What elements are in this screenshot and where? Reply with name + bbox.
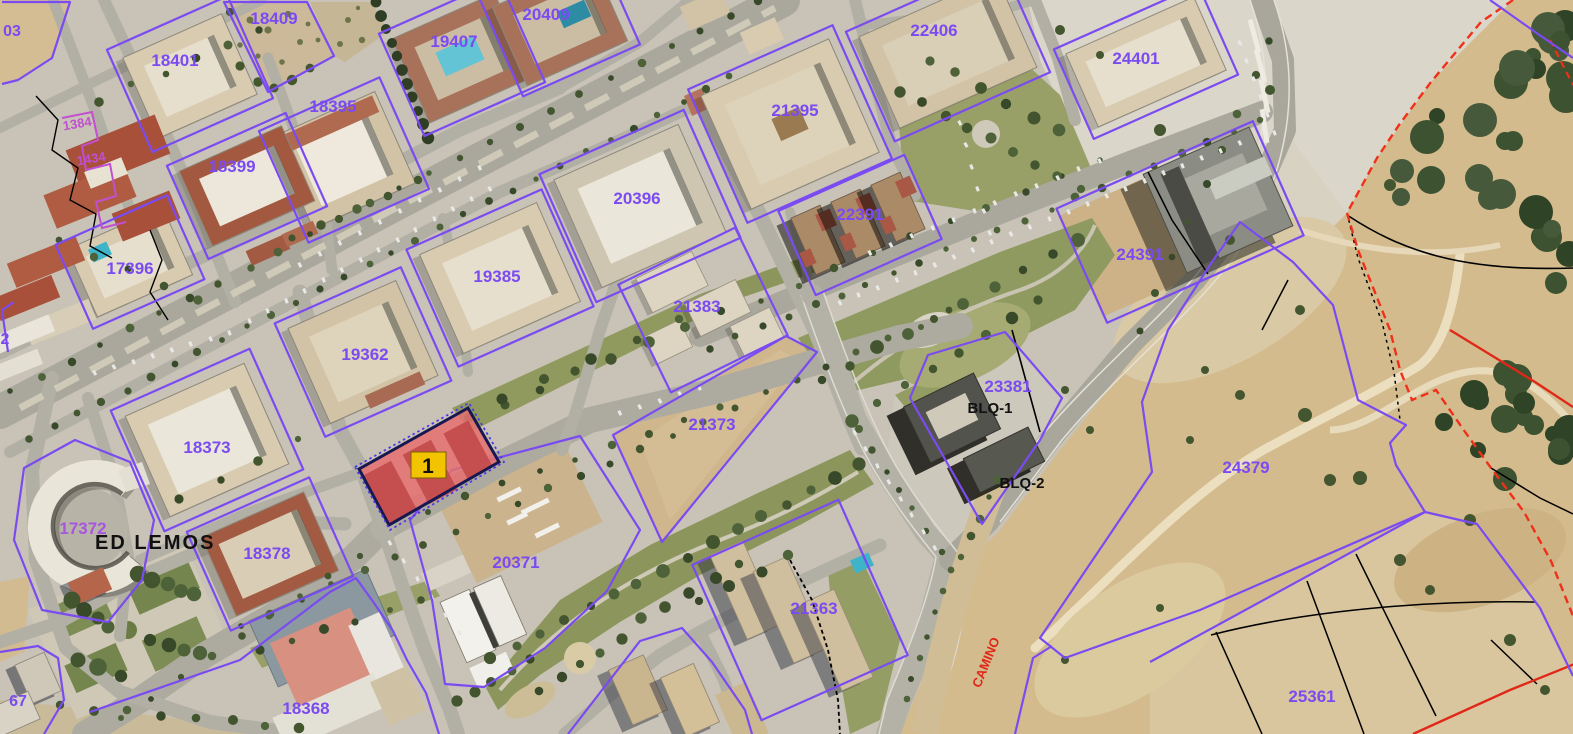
svg-text:22406: 22406 [910, 21, 957, 40]
svg-text:18368: 18368 [282, 699, 329, 718]
svg-text:ED LEMOS: ED LEMOS [95, 532, 215, 554]
svg-text:23381: 23381 [984, 377, 1031, 396]
svg-text:1: 1 [422, 455, 434, 478]
svg-text:18409: 18409 [250, 9, 297, 28]
svg-text:67: 67 [9, 693, 27, 710]
svg-text:22391: 22391 [836, 205, 883, 224]
svg-text:19407: 19407 [430, 32, 477, 51]
svg-text:20409: 20409 [522, 5, 569, 24]
svg-text:21383: 21383 [673, 297, 720, 316]
svg-text:20371: 20371 [492, 553, 539, 572]
svg-text:20396: 20396 [613, 189, 660, 208]
svg-text:24401: 24401 [1112, 49, 1159, 68]
svg-text:BLQ-1: BLQ-1 [968, 400, 1013, 417]
svg-text:19385: 19385 [473, 267, 520, 286]
svg-text:24391: 24391 [1116, 245, 1163, 264]
svg-text:21363: 21363 [790, 599, 837, 618]
svg-text:2: 2 [1, 331, 10, 348]
svg-text:24379: 24379 [1222, 458, 1269, 477]
svg-text:18401: 18401 [151, 51, 198, 70]
svg-text:25361: 25361 [1288, 687, 1335, 706]
svg-text:18378: 18378 [243, 544, 290, 563]
svg-text:18399: 18399 [208, 157, 255, 176]
svg-text:21373: 21373 [688, 415, 735, 434]
svg-text:18395: 18395 [309, 97, 356, 116]
svg-text:BLQ-2: BLQ-2 [1000, 475, 1045, 492]
svg-text:18373: 18373 [183, 438, 230, 457]
svg-text:21395: 21395 [771, 101, 818, 120]
svg-text:03: 03 [3, 23, 21, 40]
svg-text:19362: 19362 [341, 345, 388, 364]
svg-text:17396: 17396 [106, 259, 153, 278]
